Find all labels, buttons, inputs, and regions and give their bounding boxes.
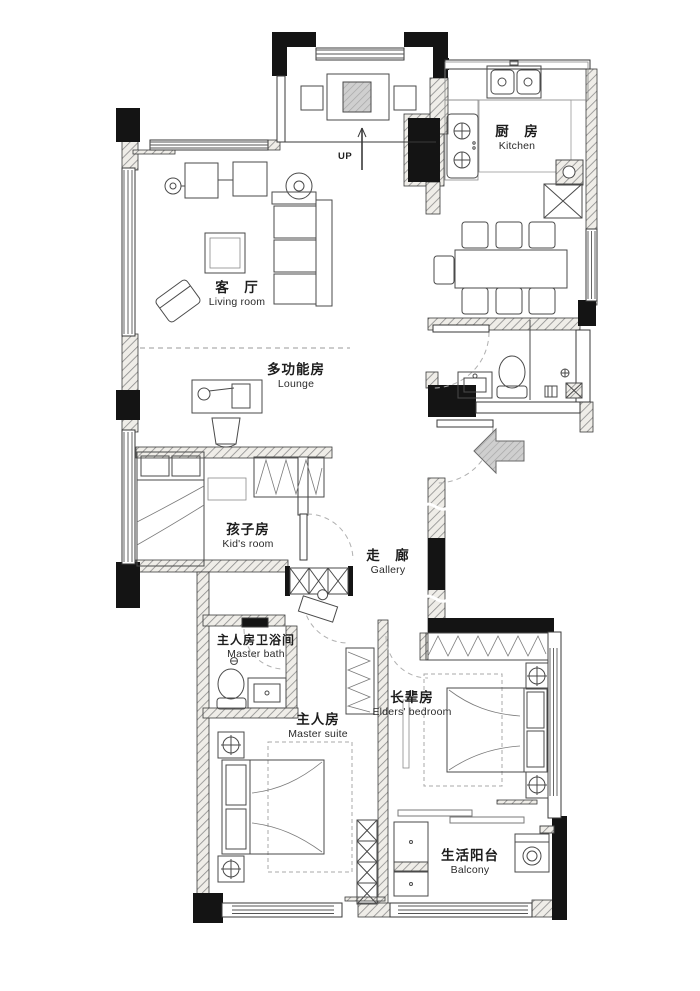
kids-room-furniture	[137, 452, 324, 566]
door-leaves	[242, 325, 493, 627]
entrance-arrow-icon	[474, 429, 524, 473]
windows	[124, 50, 595, 914]
dining-set	[434, 222, 567, 314]
master-bath-fixtures	[217, 658, 286, 710]
structural-columns	[116, 32, 596, 923]
gallery-cabinet	[290, 568, 348, 622]
floor-plan-drawing	[0, 0, 700, 991]
terrace-furniture	[301, 74, 416, 120]
floor-plan: 客 厅 Living room 多功能房 Lounge 厨 房 Kitchen …	[0, 0, 700, 991]
master-suite-furniture	[218, 648, 377, 904]
living-room-furniture	[154, 162, 332, 323]
lounge-furniture	[140, 348, 350, 447]
up-label: UP	[338, 151, 352, 162]
balcony-fixtures	[394, 810, 554, 896]
kitchen-fixtures	[445, 61, 588, 218]
